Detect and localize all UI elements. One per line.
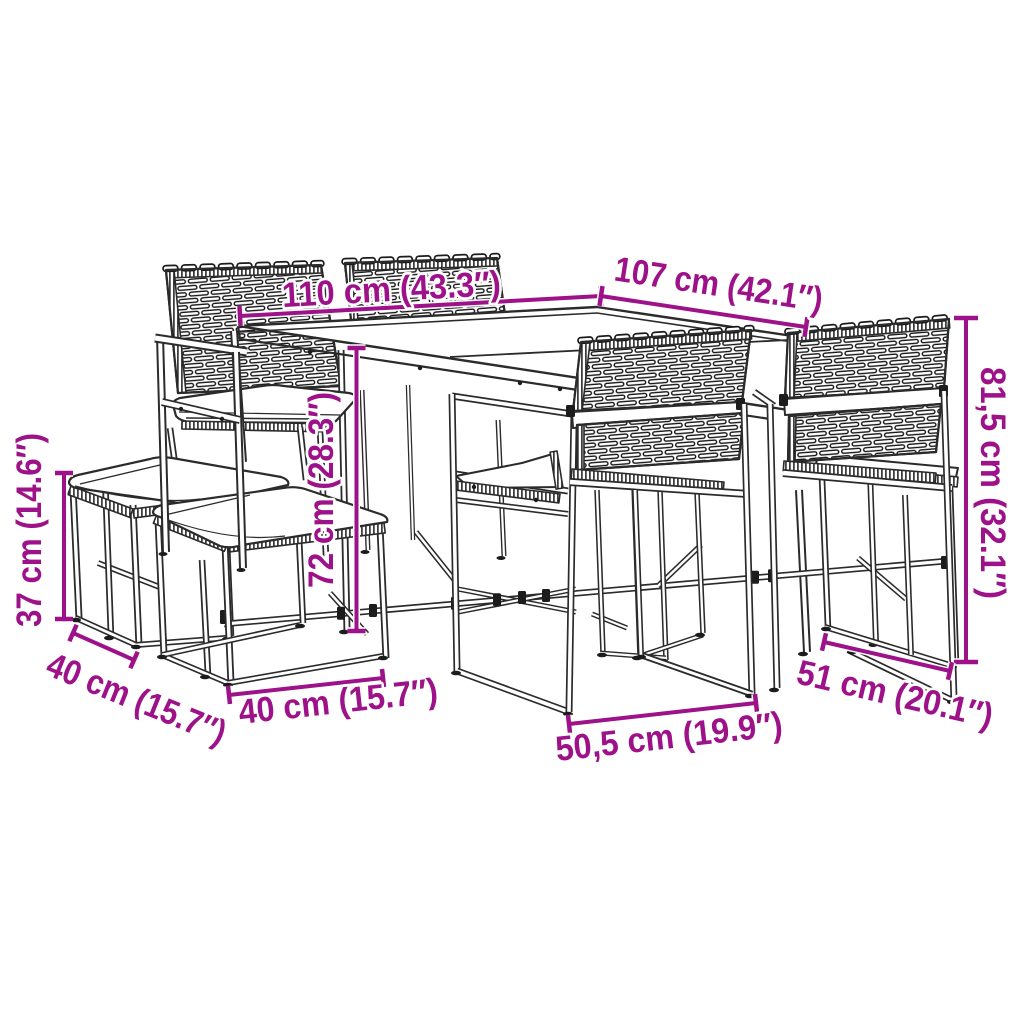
svg-text:37 cm (14.6″): 37 cm (14.6″) bbox=[10, 433, 49, 627]
svg-text:72 cm (28.3″): 72 cm (28.3″) bbox=[302, 392, 341, 588]
svg-text:81,5 cm (32.1″): 81,5 cm (32.1″) bbox=[973, 367, 1012, 599]
